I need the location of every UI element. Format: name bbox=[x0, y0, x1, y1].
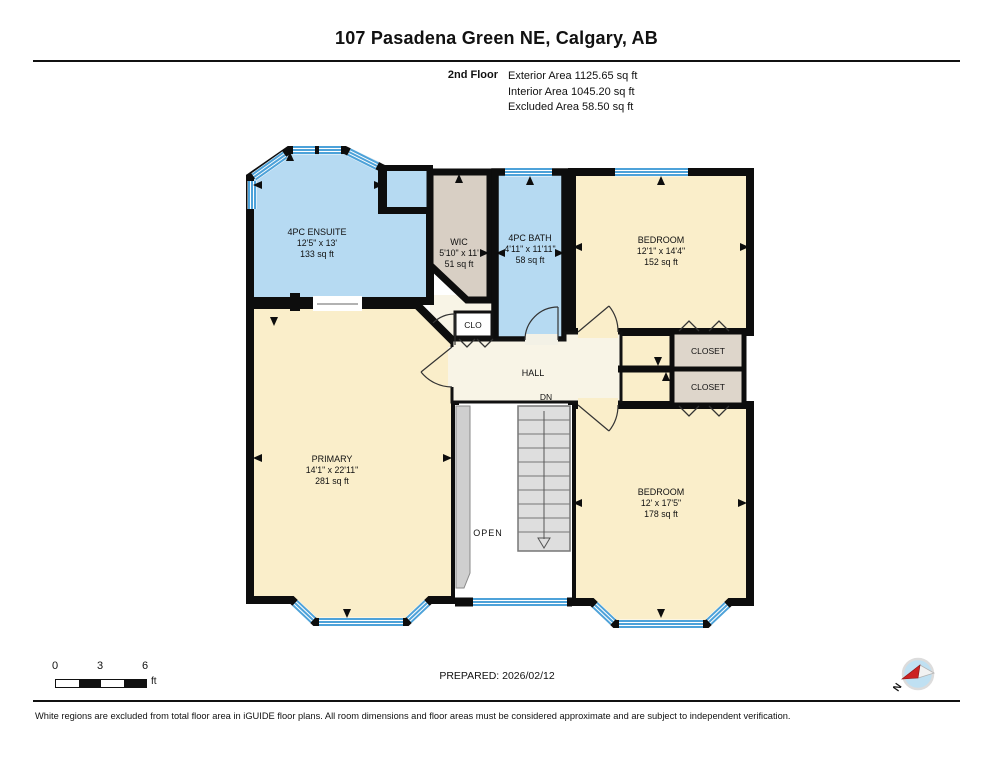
label-wic-name: WIC bbox=[450, 237, 468, 247]
area-summary: Exterior Area 1125.65 sq ft Interior Are… bbox=[508, 69, 637, 116]
staircase bbox=[518, 406, 570, 551]
label-bedroom-top-name: BEDROOM bbox=[638, 235, 685, 245]
floor-plan: 4PC ENSUITE 12'5" x 13' 133 sq ft WIC 5'… bbox=[237, 135, 757, 635]
label-open: OPEN bbox=[473, 528, 503, 538]
label-wic-area: 51 sq ft bbox=[445, 259, 474, 269]
room-primary bbox=[250, 305, 455, 622]
scale-segment bbox=[79, 680, 102, 687]
label-primary-dims: 14'1" x 22'11" bbox=[306, 465, 359, 475]
page-title: 107 Pasadena Green NE, Calgary, AB bbox=[0, 28, 993, 49]
label-bath-area: 58 sq ft bbox=[516, 255, 545, 265]
ensuite-shower bbox=[384, 168, 430, 210]
scale-segment bbox=[101, 680, 124, 687]
interior-area: Interior Area 1045.20 sq ft bbox=[508, 85, 637, 101]
exterior-area: Exterior Area 1125.65 sq ft bbox=[508, 69, 637, 85]
stairwell-area bbox=[455, 405, 572, 602]
scale-unit-label: ft bbox=[151, 676, 157, 687]
scale-tick-3: 3 bbox=[90, 660, 110, 672]
label-ensuite-name: 4PC ENSUITE bbox=[287, 227, 346, 237]
scale-bar bbox=[55, 679, 147, 688]
excluded-area: Excluded Area 58.50 sq ft bbox=[508, 100, 637, 116]
window bbox=[319, 147, 341, 153]
floorplan-page: 107 Pasadena Green NE, Calgary, AB 2nd F… bbox=[0, 0, 993, 768]
label-bath-name: 4PC BATH bbox=[508, 233, 551, 243]
window bbox=[293, 147, 315, 153]
half-wall bbox=[456, 406, 470, 588]
scale-tick-6: 6 bbox=[135, 660, 155, 672]
window bbox=[473, 599, 567, 605]
scale-segment bbox=[56, 680, 79, 687]
scale-segment bbox=[124, 680, 147, 687]
label-bedroom-top-area: 152 sq ft bbox=[644, 257, 678, 267]
label-ensuite-area: 133 sq ft bbox=[300, 249, 334, 259]
label-clo: CLO bbox=[464, 320, 482, 330]
footer-divider bbox=[33, 700, 960, 702]
compass-north-label: N bbox=[893, 681, 905, 693]
prepared-date: PREPARED: 2026/02/12 bbox=[377, 670, 617, 682]
label-hall: HALL bbox=[522, 368, 545, 378]
scale-tick-0: 0 bbox=[45, 660, 65, 672]
label-primary-area: 281 sq ft bbox=[315, 476, 349, 486]
floor-label: 2nd Floor bbox=[398, 69, 498, 81]
label-wic-dims: 5'10" x 11' bbox=[439, 248, 479, 258]
label-dn: DN bbox=[540, 392, 552, 402]
label-primary-name: PRIMARY bbox=[312, 454, 353, 464]
window bbox=[505, 169, 552, 175]
label-bedroom-bottom-dims: 12' x 17'5" bbox=[641, 498, 681, 508]
window bbox=[615, 169, 688, 175]
label-bedroom-bottom-area: 178 sq ft bbox=[644, 509, 678, 519]
label-closet-b: CLOSET bbox=[691, 382, 725, 392]
ensuite-door bbox=[313, 296, 362, 311]
label-bath-dims: 4'11" x 11'11" bbox=[504, 244, 555, 254]
door-jamb-stub bbox=[290, 293, 300, 311]
disclaimer-text: White regions are excluded from total fl… bbox=[35, 711, 965, 721]
window bbox=[619, 621, 703, 627]
room-wic bbox=[430, 172, 490, 300]
label-closet-a: CLOSET bbox=[691, 346, 725, 356]
label-bedroom-top-dims: 12'1" x 14'4" bbox=[637, 246, 685, 256]
window bbox=[319, 619, 403, 625]
compass-icon: N bbox=[893, 652, 941, 700]
label-bedroom-bottom-name: BEDROOM bbox=[638, 487, 685, 497]
header-divider bbox=[33, 60, 960, 62]
label-ensuite-dims: 12'5" x 13' bbox=[297, 238, 338, 248]
